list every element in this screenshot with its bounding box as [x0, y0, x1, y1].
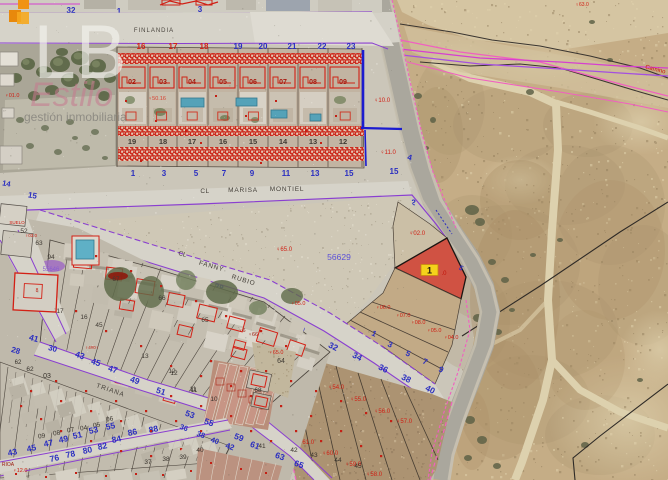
- svg-text:♀04.0: ♀04.0: [444, 335, 459, 341]
- svg-text:15: 15: [390, 167, 399, 176]
- svg-text:45: 45: [95, 322, 103, 329]
- svg-text:17: 17: [169, 42, 178, 51]
- svg-text:55646: 55646: [43, 267, 60, 273]
- svg-text:62: 62: [26, 366, 34, 373]
- svg-text:.0: .0: [441, 271, 447, 277]
- svg-text:♀02.0: ♀02.0: [409, 231, 426, 237]
- svg-text:05: 05: [219, 79, 227, 86]
- svg-text:18: 18: [159, 137, 167, 146]
- svg-text:02: 02: [128, 79, 136, 86]
- svg-text:23: 23: [347, 42, 356, 51]
- svg-text:65: 65: [201, 317, 209, 324]
- svg-text:38: 38: [162, 456, 170, 463]
- svg-text:CL: CL: [200, 188, 209, 195]
- svg-text:♀6: ♀6: [238, 328, 245, 334]
- svg-text:♀66: ♀66: [248, 332, 258, 338]
- svg-text:42: 42: [290, 447, 298, 454]
- svg-text:7: 7: [222, 169, 227, 178]
- svg-text:♀05.0: ♀05.0: [427, 328, 442, 334]
- svg-text:94: 94: [47, 254, 55, 261]
- svg-text:45: 45: [354, 463, 362, 470]
- svg-text:13: 13: [309, 137, 317, 146]
- svg-text:14: 14: [279, 137, 288, 146]
- svg-text:06: 06: [249, 79, 257, 86]
- svg-text:♀01.0: ♀01.0: [5, 93, 20, 99]
- svg-text:♀05.0: ♀05.0: [291, 301, 306, 307]
- svg-text:15: 15: [345, 169, 354, 178]
- svg-text:66: 66: [158, 295, 166, 302]
- svg-text:11: 11: [191, 387, 198, 394]
- svg-text:03: 03: [159, 79, 167, 86]
- svg-text:15: 15: [249, 137, 257, 146]
- svg-text:♀12.0: ♀12.0: [13, 468, 28, 474]
- svg-text:11: 11: [282, 169, 291, 178]
- svg-text:16: 16: [137, 42, 146, 51]
- svg-text:gestión inmobiliaria: gestión inmobiliaria: [24, 110, 127, 124]
- svg-text:08: 08: [309, 79, 317, 86]
- svg-text:♀08.0: ♀08.0: [411, 320, 426, 326]
- svg-text:RIOA: RIOA: [2, 462, 15, 468]
- svg-text:13: 13: [311, 169, 320, 178]
- svg-text:♀54.0: ♀54.0: [328, 385, 345, 391]
- svg-text:37: 37: [144, 459, 152, 466]
- svg-text:12: 12: [339, 137, 347, 146]
- svg-text:16: 16: [219, 137, 227, 146]
- svg-text:17: 17: [56, 308, 64, 315]
- svg-text:Estilo: Estilo: [30, 76, 113, 114]
- svg-text:19: 19: [234, 42, 243, 51]
- svg-text:62: 62: [15, 360, 22, 366]
- svg-text:09: 09: [339, 79, 347, 86]
- svg-text:43: 43: [310, 452, 318, 459]
- svg-text:3: 3: [162, 169, 167, 178]
- svg-text:12: 12: [170, 370, 178, 377]
- svg-text:♀07.0: ♀07.0: [396, 313, 411, 319]
- svg-text:9: 9: [250, 169, 255, 178]
- svg-text:04: 04: [188, 79, 196, 86]
- svg-text:68: 68: [254, 387, 262, 394]
- svg-text:♀63.0: ♀63.0: [575, 2, 589, 8]
- svg-text:FINLANDIA: FINLANDIA: [134, 28, 174, 34]
- svg-text:17: 17: [188, 137, 196, 146]
- svg-text:♀56.0: ♀56.0: [374, 409, 391, 415]
- svg-text:07: 07: [279, 79, 287, 86]
- svg-text:1: 1: [427, 266, 432, 276]
- svg-text:13: 13: [141, 353, 149, 360]
- svg-text:67: 67: [112, 276, 120, 283]
- svg-text:MONTIEL: MONTIEL: [270, 186, 305, 193]
- svg-text:♀03.0: ♀03.0: [25, 233, 38, 238]
- svg-text:19: 19: [128, 137, 136, 146]
- svg-text:SUELO: SUELO: [9, 220, 25, 225]
- svg-text:16: 16: [80, 314, 88, 321]
- svg-text:♀11.0: ♀11.0: [380, 150, 396, 156]
- svg-text:64: 64: [277, 358, 285, 365]
- svg-text:03: 03: [43, 373, 51, 380]
- svg-text:56629: 56629: [327, 252, 351, 262]
- svg-text:MARISA: MARISA: [228, 187, 258, 194]
- svg-text:♀57.0: ♀57.0: [396, 419, 413, 425]
- svg-text:18: 18: [200, 42, 209, 51]
- svg-text:21: 21: [288, 42, 297, 51]
- svg-text:♀65.0: ♀65.0: [269, 350, 284, 356]
- svg-text:♀65.0: ♀65.0: [276, 247, 293, 253]
- svg-text:♀55.0: ♀55.0: [350, 397, 367, 403]
- svg-text:10: 10: [210, 396, 218, 403]
- svg-text:♀10.0: ♀10.0: [374, 98, 391, 104]
- svg-text:♀06.0: ♀06.0: [376, 305, 391, 311]
- svg-text:40: 40: [196, 447, 204, 454]
- svg-text:20: 20: [259, 42, 268, 51]
- svg-text:♀58.0: ♀58.0: [366, 472, 383, 478]
- svg-text:♀50.16: ♀50.16: [148, 96, 166, 102]
- svg-text:39: 39: [179, 454, 187, 461]
- svg-text:5: 5: [194, 169, 199, 178]
- svg-text:63: 63: [35, 240, 43, 247]
- svg-text:44: 44: [334, 457, 342, 464]
